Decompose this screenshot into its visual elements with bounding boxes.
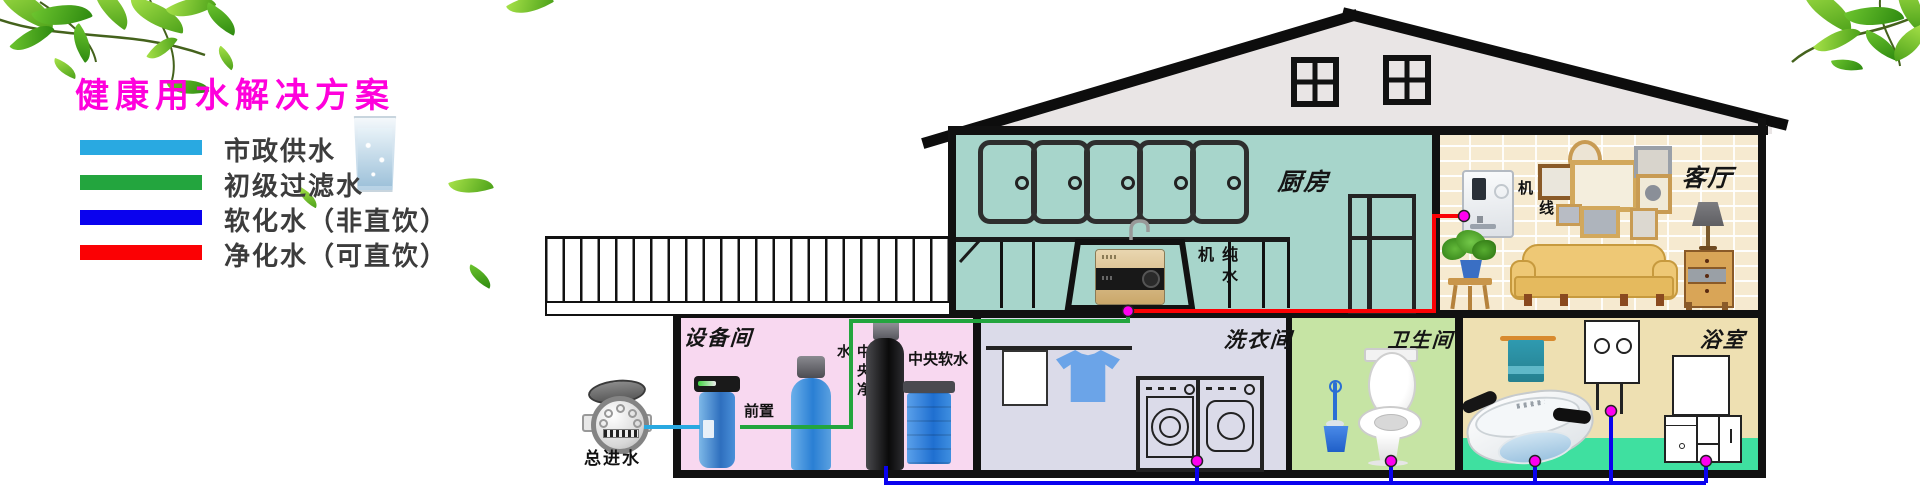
- banner: 健康用水解决方案 市政供水 初级过滤水 软化水（非直饮） 净化水（可直饮）: [0, 0, 1920, 500]
- pipes-overlay: [0, 0, 1920, 500]
- junction-dot: [1459, 211, 1470, 222]
- junction-dot: [1123, 306, 1134, 317]
- junction-dot: [1606, 406, 1617, 417]
- filtered-pipe: [740, 311, 1128, 427]
- junction-dot: [1701, 456, 1712, 467]
- softened-pipe: [886, 466, 1706, 483]
- junction-dot: [1530, 456, 1541, 467]
- junction-dot: [1386, 456, 1397, 467]
- junction-dot: [1192, 456, 1203, 467]
- purified-pipe: [1128, 216, 1464, 311]
